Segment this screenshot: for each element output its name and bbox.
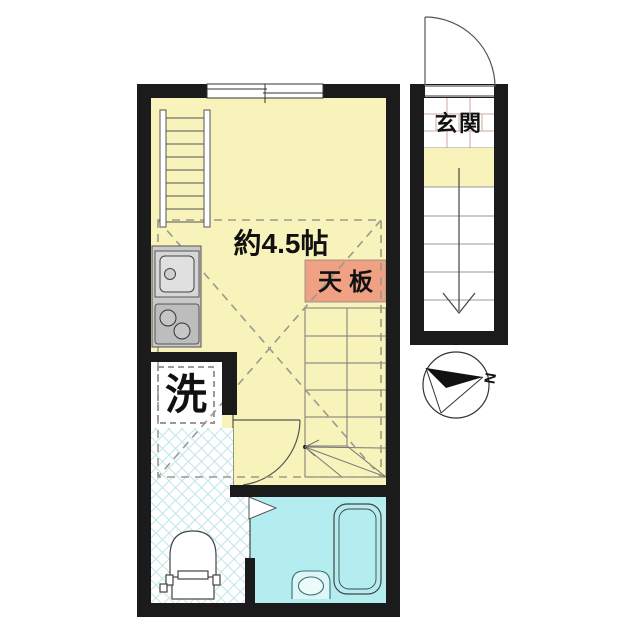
gas-stove-icon bbox=[155, 304, 199, 344]
main-building: 約4.5帖 天板 洗 bbox=[137, 84, 400, 617]
entrance-door-opening bbox=[425, 85, 494, 97]
wing-wall-bottom bbox=[410, 331, 508, 345]
wall-right bbox=[386, 84, 400, 617]
counter-top-label: 天板 bbox=[318, 269, 380, 296]
wall-washer bbox=[222, 352, 237, 415]
entrance-label: 玄関 bbox=[435, 111, 483, 136]
washer-label: 洗 bbox=[165, 371, 207, 418]
entrance-door-icon bbox=[425, 17, 495, 97]
wing-wall-right bbox=[494, 84, 508, 345]
room-size-label: 約4.5帖 bbox=[234, 227, 329, 259]
compass-icon: N bbox=[423, 352, 499, 418]
wall-left bbox=[137, 84, 151, 617]
wall-bath-stub bbox=[245, 558, 255, 603]
wall-bath bbox=[230, 485, 398, 497]
wall-bottom bbox=[137, 603, 400, 617]
kitchen bbox=[152, 246, 201, 347]
floor-plan: 約4.5帖 天板 洗 bbox=[0, 0, 640, 640]
entrance-wing: 玄関 bbox=[410, 17, 508, 345]
kitchen-sink-icon bbox=[155, 251, 199, 297]
wing-wall-left bbox=[410, 84, 424, 345]
floor-plan-svg: 約4.5帖 天板 洗 bbox=[0, 0, 640, 640]
washbasin-icon bbox=[292, 571, 330, 599]
washroom-floor bbox=[151, 428, 233, 497]
